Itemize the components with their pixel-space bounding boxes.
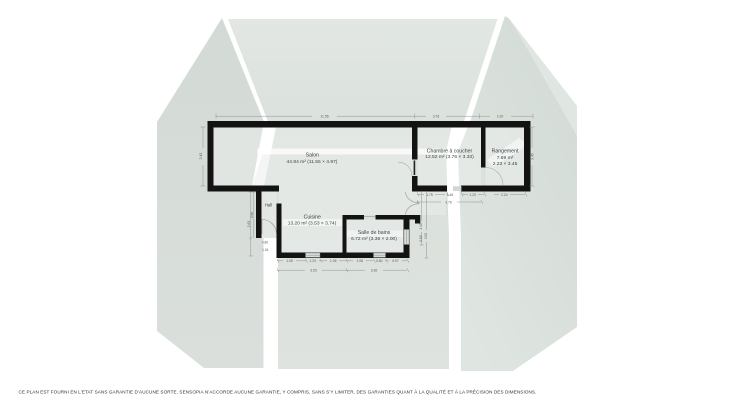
svg-text:Hall: Hall <box>265 202 272 207</box>
svg-text:1.46: 1.46 <box>447 193 454 197</box>
svg-text:1.06: 1.06 <box>330 259 337 263</box>
svg-text:0.97: 0.97 <box>392 259 399 263</box>
svg-text:1.20: 1.20 <box>469 193 476 197</box>
svg-text:6.72 m² (3.36 × 2.00): 6.72 m² (3.36 × 2.00) <box>351 236 397 242</box>
svg-text:Cuisine: Cuisine <box>304 215 321 221</box>
svg-text:Rangement: Rangement <box>492 149 519 155</box>
svg-text:1.08: 1.08 <box>356 259 363 263</box>
svg-text:1.04: 1.04 <box>262 248 269 252</box>
svg-text:0.86: 0.86 <box>250 212 254 218</box>
svg-text:3.53: 3.53 <box>310 269 317 273</box>
svg-text:3.36: 3.36 <box>371 269 378 273</box>
svg-text:1.20: 1.20 <box>309 259 316 263</box>
svg-text:13.20 m² (3.53 × 3.74): 13.20 m² (3.53 × 3.74) <box>288 220 337 226</box>
svg-text:44.84 m² (11.55 × 4.97): 44.84 m² (11.55 × 4.97) <box>287 159 338 165</box>
svg-text:2.63: 2.63 <box>247 221 251 228</box>
svg-text:CE PLAN EST FOURNI EN L’ETAT S: CE PLAN EST FOURNI EN L’ETAT SANS GARANT… <box>19 389 537 395</box>
svg-text:2.00: 2.00 <box>424 233 428 239</box>
svg-text:3.45: 3.45 <box>531 153 535 160</box>
svg-text:2.20: 2.20 <box>497 115 504 119</box>
svg-text:0.60: 0.60 <box>419 235 423 241</box>
svg-text:Salle de bains: Salle de bains <box>358 230 391 236</box>
svg-text:3.76: 3.76 <box>445 201 452 205</box>
svg-text:7.69 m²: 7.69 m² <box>497 155 514 161</box>
svg-text:Chambre à coucher: Chambre à coucher <box>427 148 473 154</box>
svg-text:2.24: 2.24 <box>501 193 508 197</box>
svg-text:1.05: 1.05 <box>286 259 293 263</box>
svg-text:0.80: 0.80 <box>262 241 269 245</box>
svg-text:0.80: 0.80 <box>376 259 383 263</box>
svg-text:12.52 m² (3.76 × 3.33): 12.52 m² (3.76 × 3.33) <box>425 154 474 160</box>
svg-text:Salon: Salon <box>306 152 319 158</box>
svg-text:3.43: 3.43 <box>199 153 203 160</box>
svg-text:2.23 × 3.45: 2.23 × 3.45 <box>493 161 518 167</box>
svg-text:11.55: 11.55 <box>320 115 328 119</box>
svg-text:3.76: 3.76 <box>433 115 440 119</box>
svg-text:1.75: 1.75 <box>426 193 433 197</box>
svg-text:1.40: 1.40 <box>419 223 423 229</box>
